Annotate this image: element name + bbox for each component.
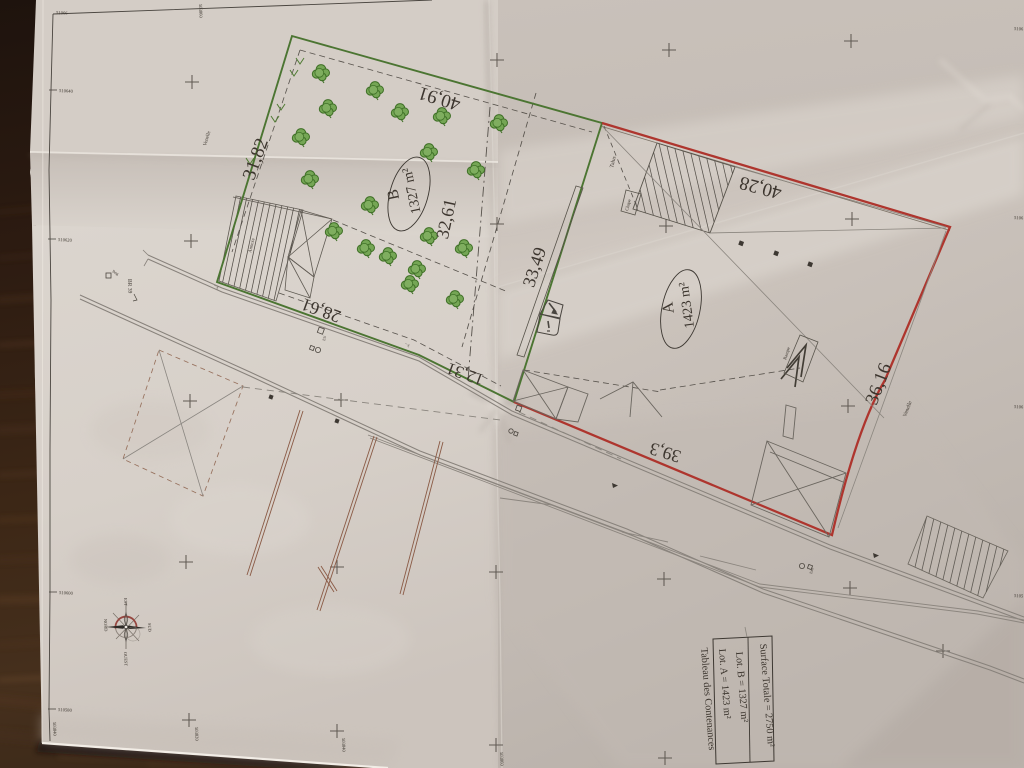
svg-text:503840: 503840 [341, 738, 347, 753]
svg-text:NORD: NORD [103, 619, 108, 632]
svg-text:51066: 51066 [56, 10, 68, 16]
svg-text:503860: 503860 [499, 752, 505, 767]
svg-text:503860: 503860 [198, 4, 204, 19]
svg-text:503820: 503820 [194, 727, 200, 742]
svg-text:5105: 5105 [1014, 593, 1024, 599]
svg-text:510620: 510620 [58, 237, 73, 243]
svg-text:510640: 510640 [59, 88, 74, 94]
svg-text:5106: 5106 [1014, 404, 1024, 410]
svg-text:OUEST: OUEST [123, 652, 129, 667]
svg-text:SUD: SUD [147, 623, 152, 632]
svg-text:5106: 5106 [1014, 26, 1024, 32]
svg-text:EST: EST [123, 598, 128, 606]
svg-text:510580: 510580 [58, 707, 73, 713]
svg-text:5106: 5106 [1014, 215, 1024, 221]
svg-text:510600: 510600 [59, 590, 74, 596]
svg-text:BR 39: BR 39 [126, 279, 133, 294]
svg-text:503840: 503840 [52, 722, 58, 737]
